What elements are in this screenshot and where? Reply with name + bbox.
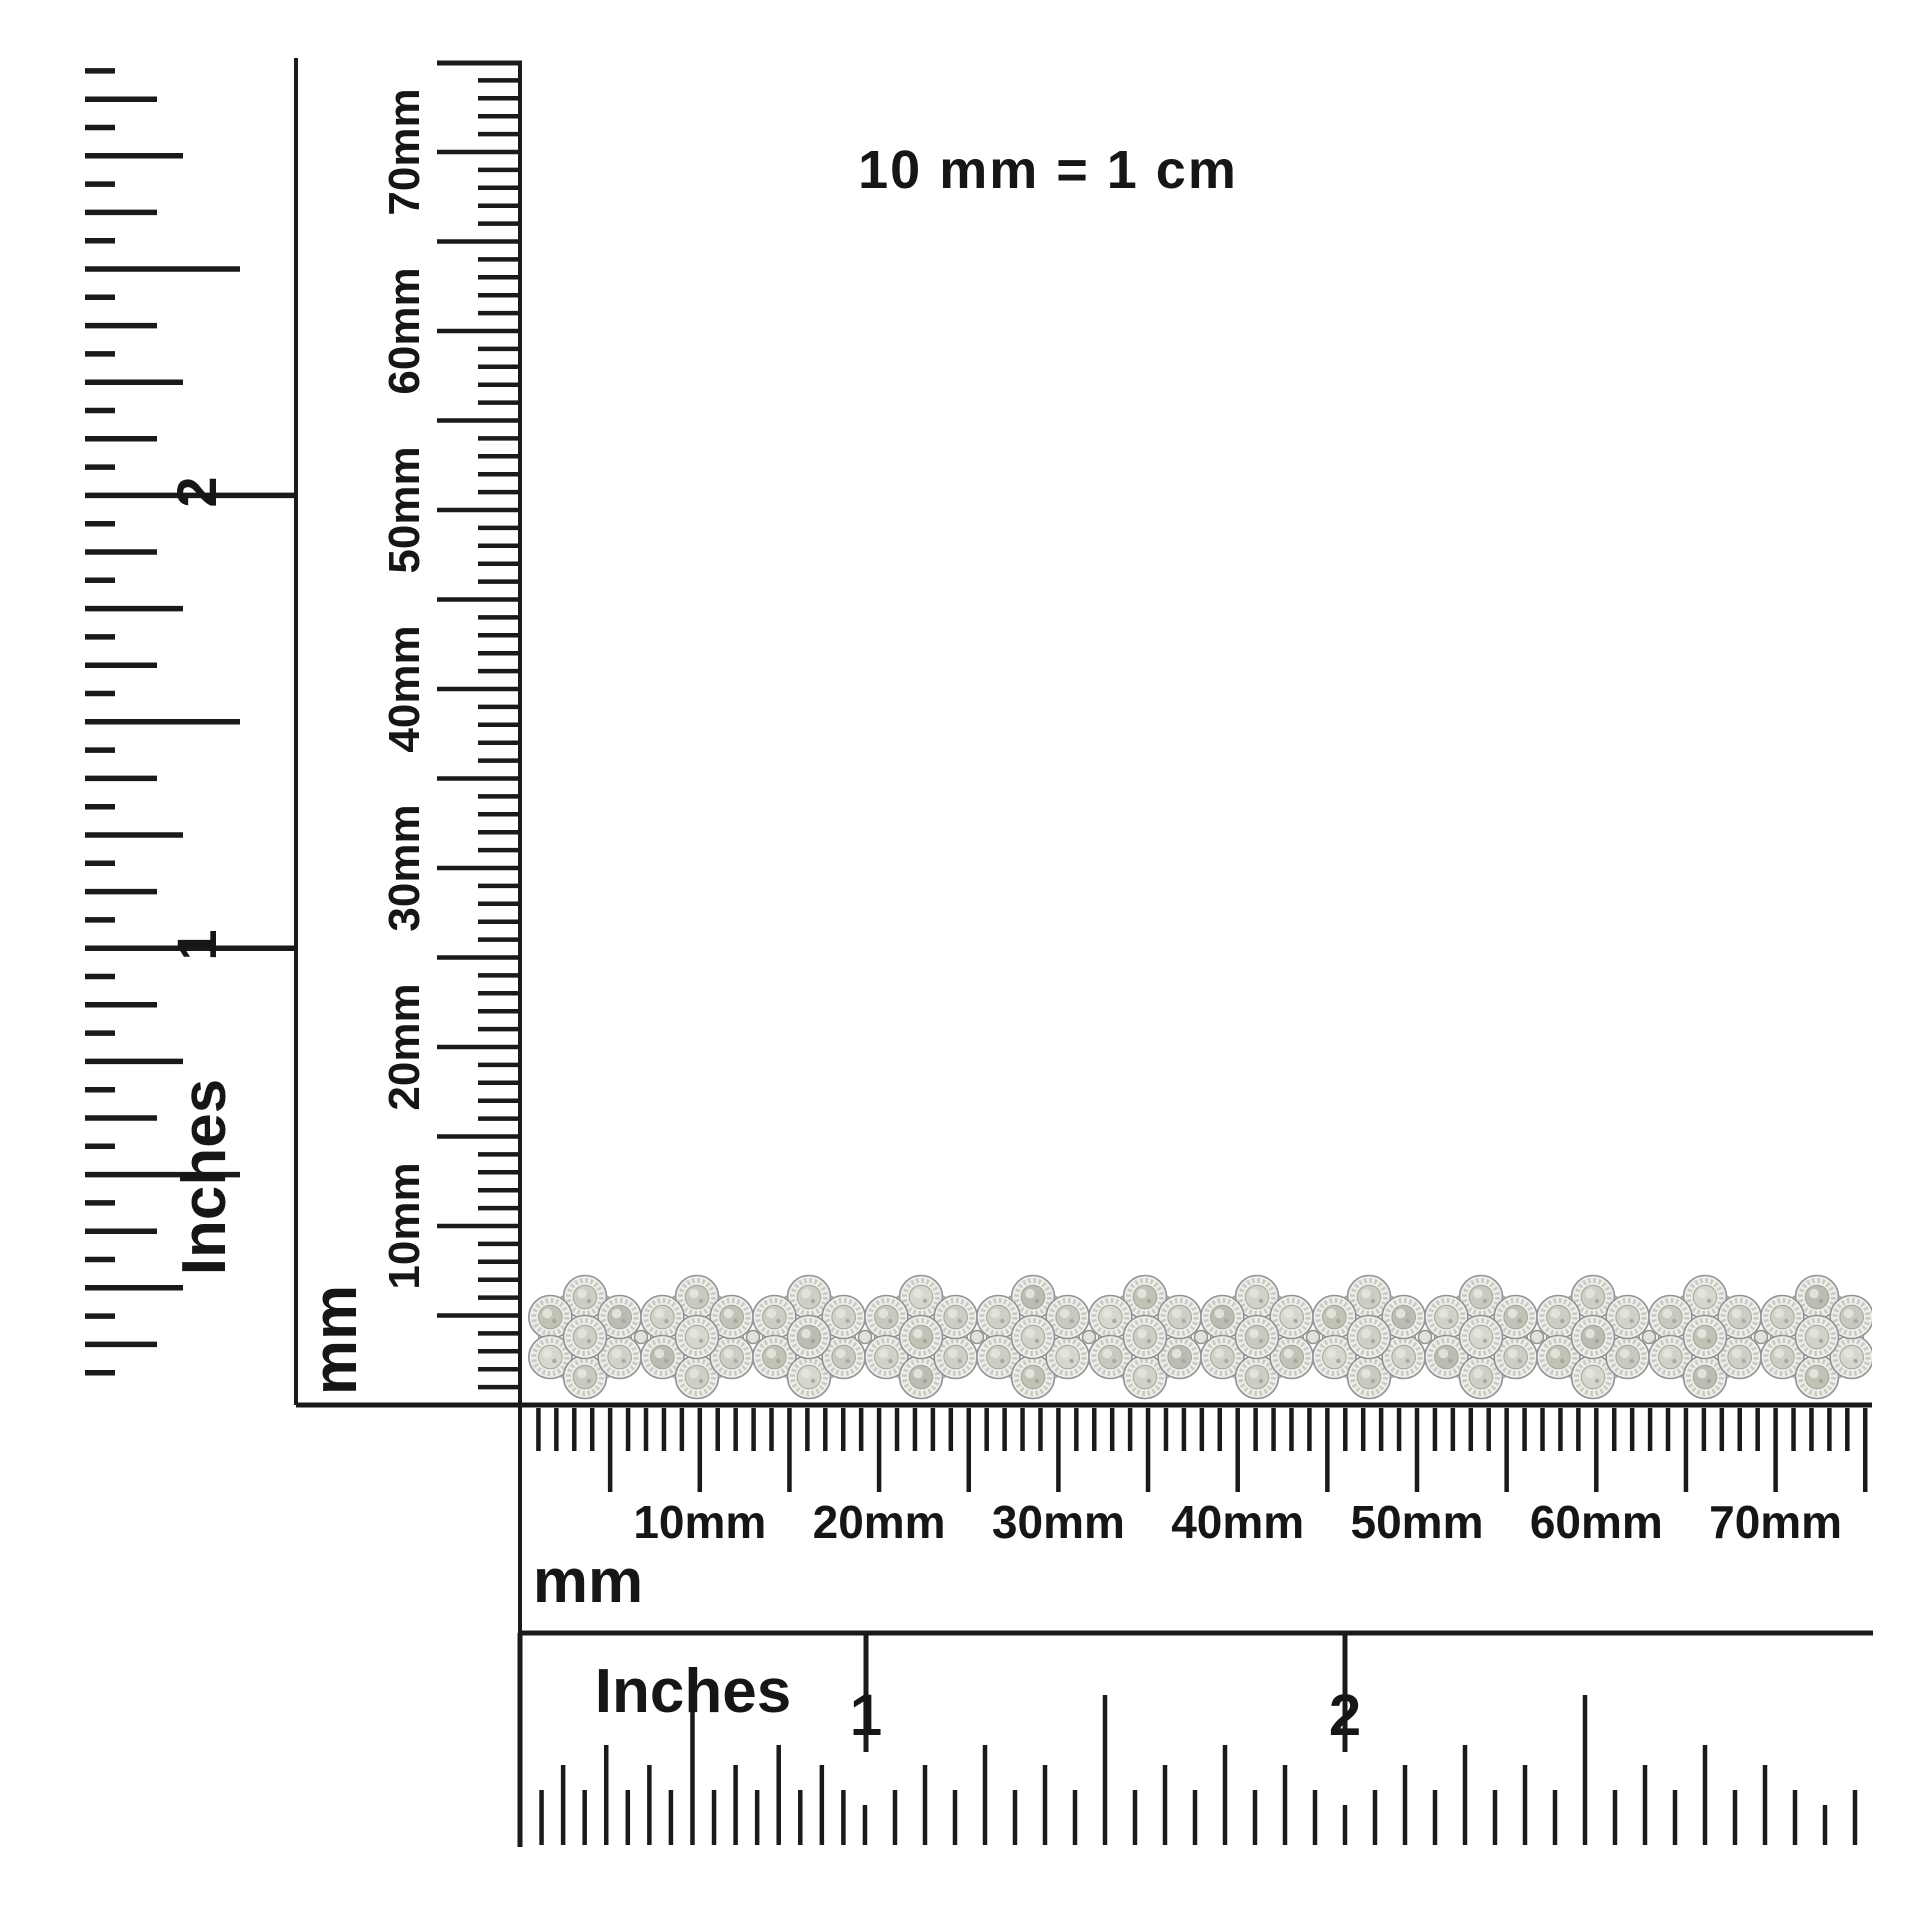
vertical-inches-unit-label: Inches: [174, 1079, 236, 1275]
measurement-image: 10 mm = 1 cm 2 1 Inches mm mm Inches 1 2…: [0, 0, 1920, 1920]
ruler-and-bracelet-art: [0, 0, 1920, 1920]
horizontal-inches-unit-label: Inches: [595, 1661, 791, 1723]
horizontal-mm-label: 30mm: [992, 1499, 1125, 1545]
horizontal-mm-label: 20mm: [813, 1499, 946, 1545]
vertical-mm-label: 10mm: [383, 1162, 427, 1289]
vertical-mm-label: 50mm: [383, 446, 427, 573]
vertical-mm-unit-label: mm: [305, 1285, 367, 1395]
vertical-mm-ruler: [437, 62, 522, 1847]
horizontal-mm-unit-label: mm: [533, 1551, 643, 1613]
horizontal-mm-ruler: [296, 1405, 1872, 1492]
vertical-mm-label: 70mm: [383, 88, 427, 215]
scale-note: 10 mm = 1 cm: [858, 143, 1238, 197]
vertical-mm-label: 60mm: [383, 267, 427, 394]
bracelet: [529, 1276, 1873, 1399]
vertical-mm-label: 30mm: [383, 804, 427, 931]
vertical-mm-label: 40mm: [383, 625, 427, 752]
horizontal-mm-label: 40mm: [1171, 1499, 1304, 1545]
horizontal-mm-label: 70mm: [1709, 1499, 1842, 1545]
vertical-mm-label: 20mm: [383, 983, 427, 1110]
vertical-inches-mark-1: 1: [169, 929, 225, 960]
horizontal-inches-mark-1: 1: [850, 1687, 882, 1745]
horizontal-mm-label: 10mm: [633, 1499, 766, 1545]
vertical-inches-mark-2: 2: [169, 476, 225, 507]
horizontal-inches-mark-2: 2: [1329, 1687, 1361, 1745]
horizontal-mm-label: 60mm: [1530, 1499, 1663, 1545]
horizontal-mm-label: 50mm: [1351, 1499, 1484, 1545]
